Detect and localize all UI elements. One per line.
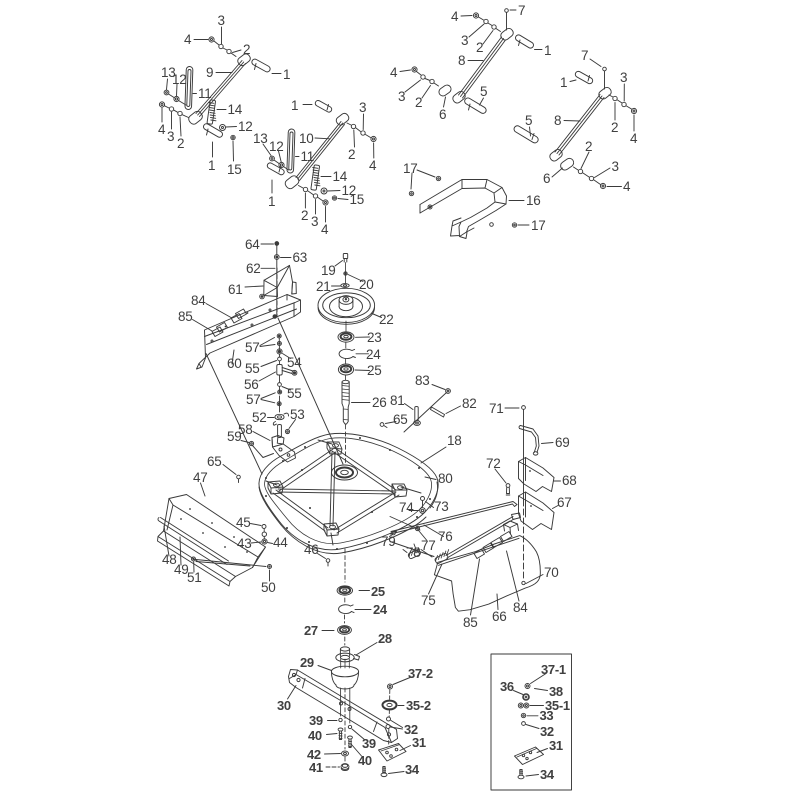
svg-text:1: 1 [268, 194, 275, 209]
svg-text:1: 1 [544, 43, 551, 58]
svg-text:36: 36 [500, 679, 514, 694]
svg-text:44: 44 [273, 535, 288, 550]
svg-text:28: 28 [378, 631, 392, 646]
svg-text:4: 4 [369, 158, 377, 173]
svg-text:1: 1 [208, 158, 215, 173]
svg-text:65: 65 [207, 454, 221, 469]
svg-text:31: 31 [549, 738, 563, 753]
svg-text:4: 4 [623, 179, 631, 194]
svg-text:67: 67 [557, 495, 571, 510]
svg-text:79: 79 [381, 534, 395, 549]
svg-text:29: 29 [300, 655, 314, 670]
svg-text:11: 11 [301, 149, 314, 164]
svg-text:50: 50 [261, 580, 275, 595]
svg-text:17: 17 [403, 161, 417, 176]
svg-text:61: 61 [228, 282, 242, 297]
svg-text:84: 84 [513, 600, 528, 615]
svg-text:6: 6 [543, 171, 550, 186]
svg-text:25: 25 [367, 363, 381, 378]
svg-text:56: 56 [244, 377, 258, 392]
svg-text:12: 12 [269, 139, 283, 154]
svg-text:3: 3 [167, 129, 174, 144]
svg-text:34: 34 [540, 767, 555, 782]
svg-text:8: 8 [554, 113, 561, 128]
svg-text:80: 80 [438, 471, 452, 486]
svg-text:1: 1 [560, 75, 567, 90]
svg-text:2: 2 [243, 42, 250, 57]
svg-text:32: 32 [540, 724, 554, 739]
svg-text:27: 27 [304, 623, 318, 638]
svg-text:71: 71 [489, 401, 503, 416]
svg-text:40: 40 [358, 753, 372, 768]
svg-text:5: 5 [525, 113, 532, 128]
svg-text:84: 84 [191, 293, 206, 308]
svg-text:74: 74 [399, 500, 414, 515]
svg-text:72: 72 [486, 456, 500, 471]
svg-text:5: 5 [480, 84, 487, 99]
svg-text:10: 10 [299, 131, 313, 146]
svg-text:18: 18 [447, 433, 461, 448]
svg-text:64: 64 [245, 237, 260, 252]
svg-text:77: 77 [421, 538, 435, 553]
svg-text:24: 24 [366, 347, 381, 362]
svg-text:1: 1 [291, 98, 298, 113]
svg-text:20: 20 [359, 277, 373, 292]
svg-text:2: 2 [348, 147, 355, 162]
svg-text:68: 68 [562, 473, 576, 488]
svg-text:52: 52 [252, 410, 266, 425]
svg-text:55: 55 [287, 386, 301, 401]
svg-text:57: 57 [246, 392, 260, 407]
svg-text:22: 22 [379, 312, 393, 327]
svg-text:76: 76 [438, 529, 452, 544]
svg-text:19: 19 [321, 263, 335, 278]
svg-text:40: 40 [308, 728, 322, 743]
svg-text:3: 3 [311, 214, 318, 229]
svg-text:7: 7 [581, 48, 588, 63]
svg-text:7: 7 [518, 3, 525, 18]
svg-text:33: 33 [540, 708, 554, 723]
svg-text:4: 4 [184, 32, 192, 47]
svg-text:47: 47 [193, 470, 207, 485]
svg-text:70: 70 [544, 565, 558, 580]
svg-text:82: 82 [462, 396, 476, 411]
svg-text:3: 3 [359, 100, 366, 115]
svg-text:3: 3 [398, 89, 405, 104]
svg-text:25: 25 [371, 584, 385, 599]
svg-text:85: 85 [463, 615, 477, 630]
svg-text:24: 24 [373, 602, 388, 617]
svg-text:65: 65 [393, 412, 407, 427]
svg-text:59: 59 [227, 429, 241, 444]
svg-text:8: 8 [458, 53, 465, 68]
svg-text:14: 14 [333, 169, 348, 184]
svg-text:41: 41 [309, 760, 323, 775]
svg-text:4: 4 [390, 65, 398, 80]
svg-text:2: 2 [476, 40, 483, 55]
svg-text:2: 2 [177, 136, 184, 151]
svg-text:38: 38 [549, 684, 563, 699]
svg-text:55: 55 [245, 361, 259, 376]
svg-text:78: 78 [406, 545, 420, 560]
svg-text:34: 34 [405, 762, 420, 777]
svg-text:17: 17 [531, 218, 545, 233]
svg-text:37-1: 37-1 [541, 662, 566, 677]
svg-text:1: 1 [283, 67, 290, 82]
svg-text:26: 26 [372, 395, 386, 410]
svg-text:66: 66 [492, 609, 506, 624]
svg-text:23: 23 [367, 330, 381, 345]
svg-text:13: 13 [253, 131, 267, 146]
svg-text:3: 3 [461, 33, 468, 48]
svg-text:4: 4 [158, 122, 166, 137]
svg-text:30: 30 [277, 698, 291, 713]
svg-text:45: 45 [236, 515, 250, 530]
svg-text:51: 51 [187, 570, 201, 585]
svg-text:63: 63 [293, 250, 307, 265]
svg-text:6: 6 [439, 107, 446, 122]
svg-text:15: 15 [350, 192, 364, 207]
svg-text:57: 57 [245, 340, 259, 355]
svg-text:60: 60 [227, 356, 241, 371]
svg-text:9: 9 [206, 65, 213, 80]
svg-text:12: 12 [172, 72, 186, 87]
svg-text:31: 31 [412, 735, 426, 750]
svg-text:3: 3 [620, 70, 627, 85]
svg-text:4: 4 [321, 222, 329, 237]
svg-text:3: 3 [218, 13, 225, 28]
svg-text:2: 2 [585, 139, 592, 154]
svg-text:2: 2 [611, 120, 618, 135]
svg-text:3: 3 [612, 159, 619, 174]
svg-text:83: 83 [415, 373, 429, 388]
svg-text:62: 62 [246, 261, 260, 276]
svg-text:16: 16 [526, 193, 540, 208]
svg-text:12: 12 [238, 119, 252, 134]
svg-text:2: 2 [415, 95, 422, 110]
svg-text:14: 14 [228, 102, 243, 117]
svg-text:54: 54 [287, 355, 302, 370]
svg-text:75: 75 [421, 593, 435, 608]
svg-text:15: 15 [227, 162, 241, 177]
svg-text:81: 81 [390, 393, 404, 408]
svg-text:11: 11 [198, 86, 211, 101]
svg-text:4: 4 [630, 131, 638, 146]
svg-text:35-2: 35-2 [406, 698, 431, 713]
svg-text:4: 4 [451, 9, 459, 24]
svg-text:69: 69 [555, 435, 569, 450]
svg-text:39: 39 [309, 713, 323, 728]
svg-text:39: 39 [362, 736, 376, 751]
svg-text:46: 46 [304, 542, 318, 557]
svg-text:2: 2 [301, 208, 308, 223]
svg-text:53: 53 [290, 407, 304, 422]
svg-text:85: 85 [178, 309, 192, 324]
svg-text:37-2: 37-2 [408, 666, 433, 681]
svg-text:73: 73 [434, 499, 448, 514]
